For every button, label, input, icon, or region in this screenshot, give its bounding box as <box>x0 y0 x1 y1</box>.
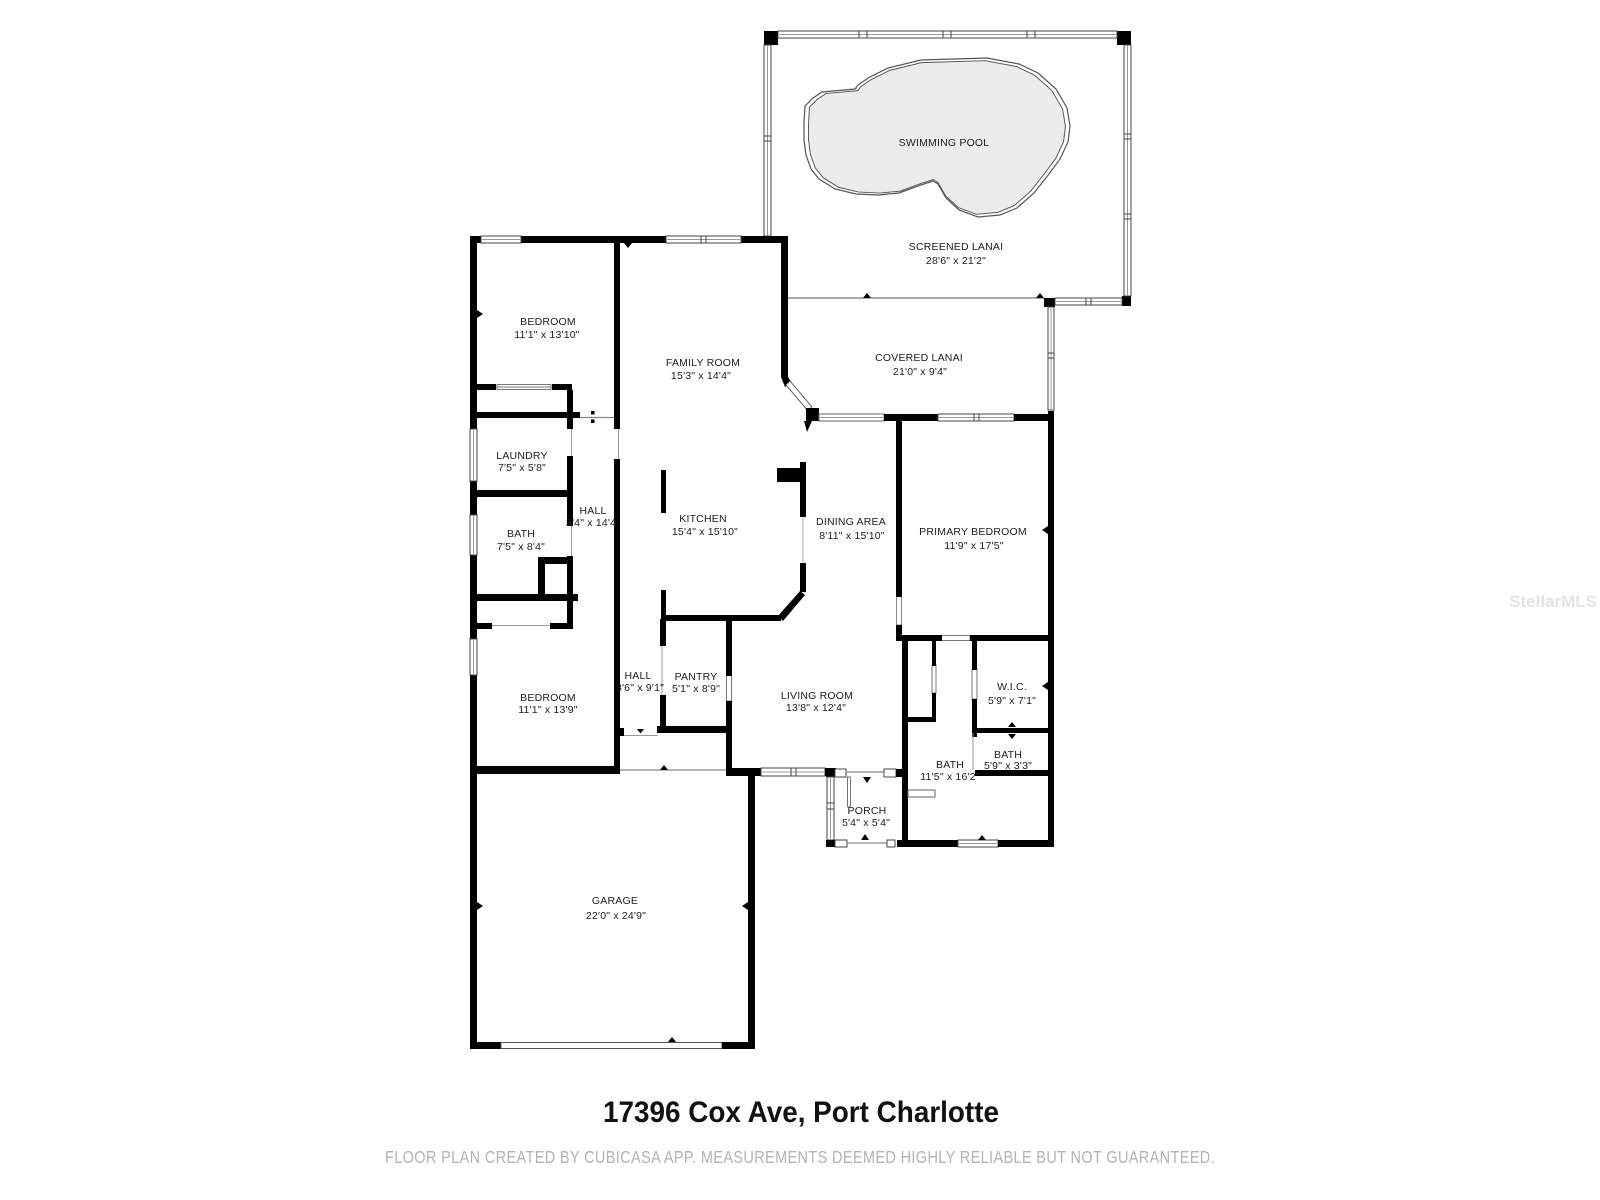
svg-text:FLOOR PLAN CREATED BY CUBICASA: FLOOR PLAN CREATED BY CUBICASA APP. MEAS… <box>385 1147 1215 1167</box>
svg-text:BEDROOM: BEDROOM <box>520 316 576 328</box>
svg-text:17396 Cox Ave, Port Charlotte: 17396 Cox Ave, Port Charlotte <box>603 1096 999 1129</box>
svg-text:PRIMARY BEDROOM: PRIMARY BEDROOM <box>919 526 1027 538</box>
svg-text:15'3" x 14'4": 15'3" x 14'4" <box>671 370 731 382</box>
svg-text:5'9" x 7'1": 5'9" x 7'1" <box>988 695 1036 707</box>
svg-text:FAMILY ROOM: FAMILY ROOM <box>666 357 740 369</box>
svg-text:11'9" x 17'5": 11'9" x 17'5" <box>944 540 1003 552</box>
svg-text:HALL: HALL <box>624 670 651 682</box>
svg-text:LIVING ROOM: LIVING ROOM <box>781 690 853 702</box>
svg-text:5'9" x 3'3": 5'9" x 3'3" <box>984 760 1032 772</box>
svg-text:StellarMLS: StellarMLS <box>1509 592 1597 611</box>
svg-text:BEDROOM: BEDROOM <box>520 692 576 704</box>
svg-text:SWIMMING POOL: SWIMMING POOL <box>899 137 990 149</box>
svg-text:LAUNDRY: LAUNDRY <box>496 450 547 462</box>
svg-text:BATH: BATH <box>507 528 535 540</box>
svg-text:7'5" x 8'4": 7'5" x 8'4" <box>497 541 545 553</box>
svg-text:11'1" x 13'9": 11'1" x 13'9" <box>518 704 577 716</box>
svg-text:W.I.C.: W.I.C. <box>997 681 1027 693</box>
svg-text:3'6" x 9'1": 3'6" x 9'1" <box>616 682 664 694</box>
svg-text:HALL: HALL <box>579 505 606 517</box>
svg-text:SCREENED LANAI: SCREENED LANAI <box>909 241 1003 253</box>
svg-text:28'6" x 21'2": 28'6" x 21'2" <box>926 255 986 267</box>
svg-text:22'0" x 24'9": 22'0" x 24'9" <box>586 910 646 922</box>
svg-text:11'1" x 13'10": 11'1" x 13'10" <box>514 329 580 341</box>
svg-text:PORCH: PORCH <box>848 805 887 817</box>
svg-text:11'5" x 16'2": 11'5" x 16'2" <box>920 771 979 783</box>
svg-text:BATH: BATH <box>936 759 964 771</box>
svg-text:8'11" x 15'10": 8'11" x 15'10" <box>819 530 885 542</box>
svg-text:15'4" x 15'10": 15'4" x 15'10" <box>672 526 738 538</box>
svg-text:KITCHEN: KITCHEN <box>679 513 727 525</box>
svg-text:GARAGE: GARAGE <box>592 895 638 907</box>
svg-text:3'4" x 14'4": 3'4" x 14'4" <box>566 517 620 529</box>
svg-text:7'5" x 5'8": 7'5" x 5'8" <box>498 462 546 474</box>
svg-text:5'4" x 5'4": 5'4" x 5'4" <box>842 817 890 829</box>
svg-text:5'1" x 8'9": 5'1" x 8'9" <box>672 683 720 695</box>
svg-text:DINING AREA: DINING AREA <box>816 516 886 528</box>
svg-text:COVERED LANAI: COVERED LANAI <box>875 352 963 364</box>
svg-text:13'8" x 12'4": 13'8" x 12'4" <box>786 702 846 714</box>
svg-text:21'0" x 9'4": 21'0" x 9'4" <box>893 366 947 378</box>
svg-text:PANTRY: PANTRY <box>675 671 718 683</box>
